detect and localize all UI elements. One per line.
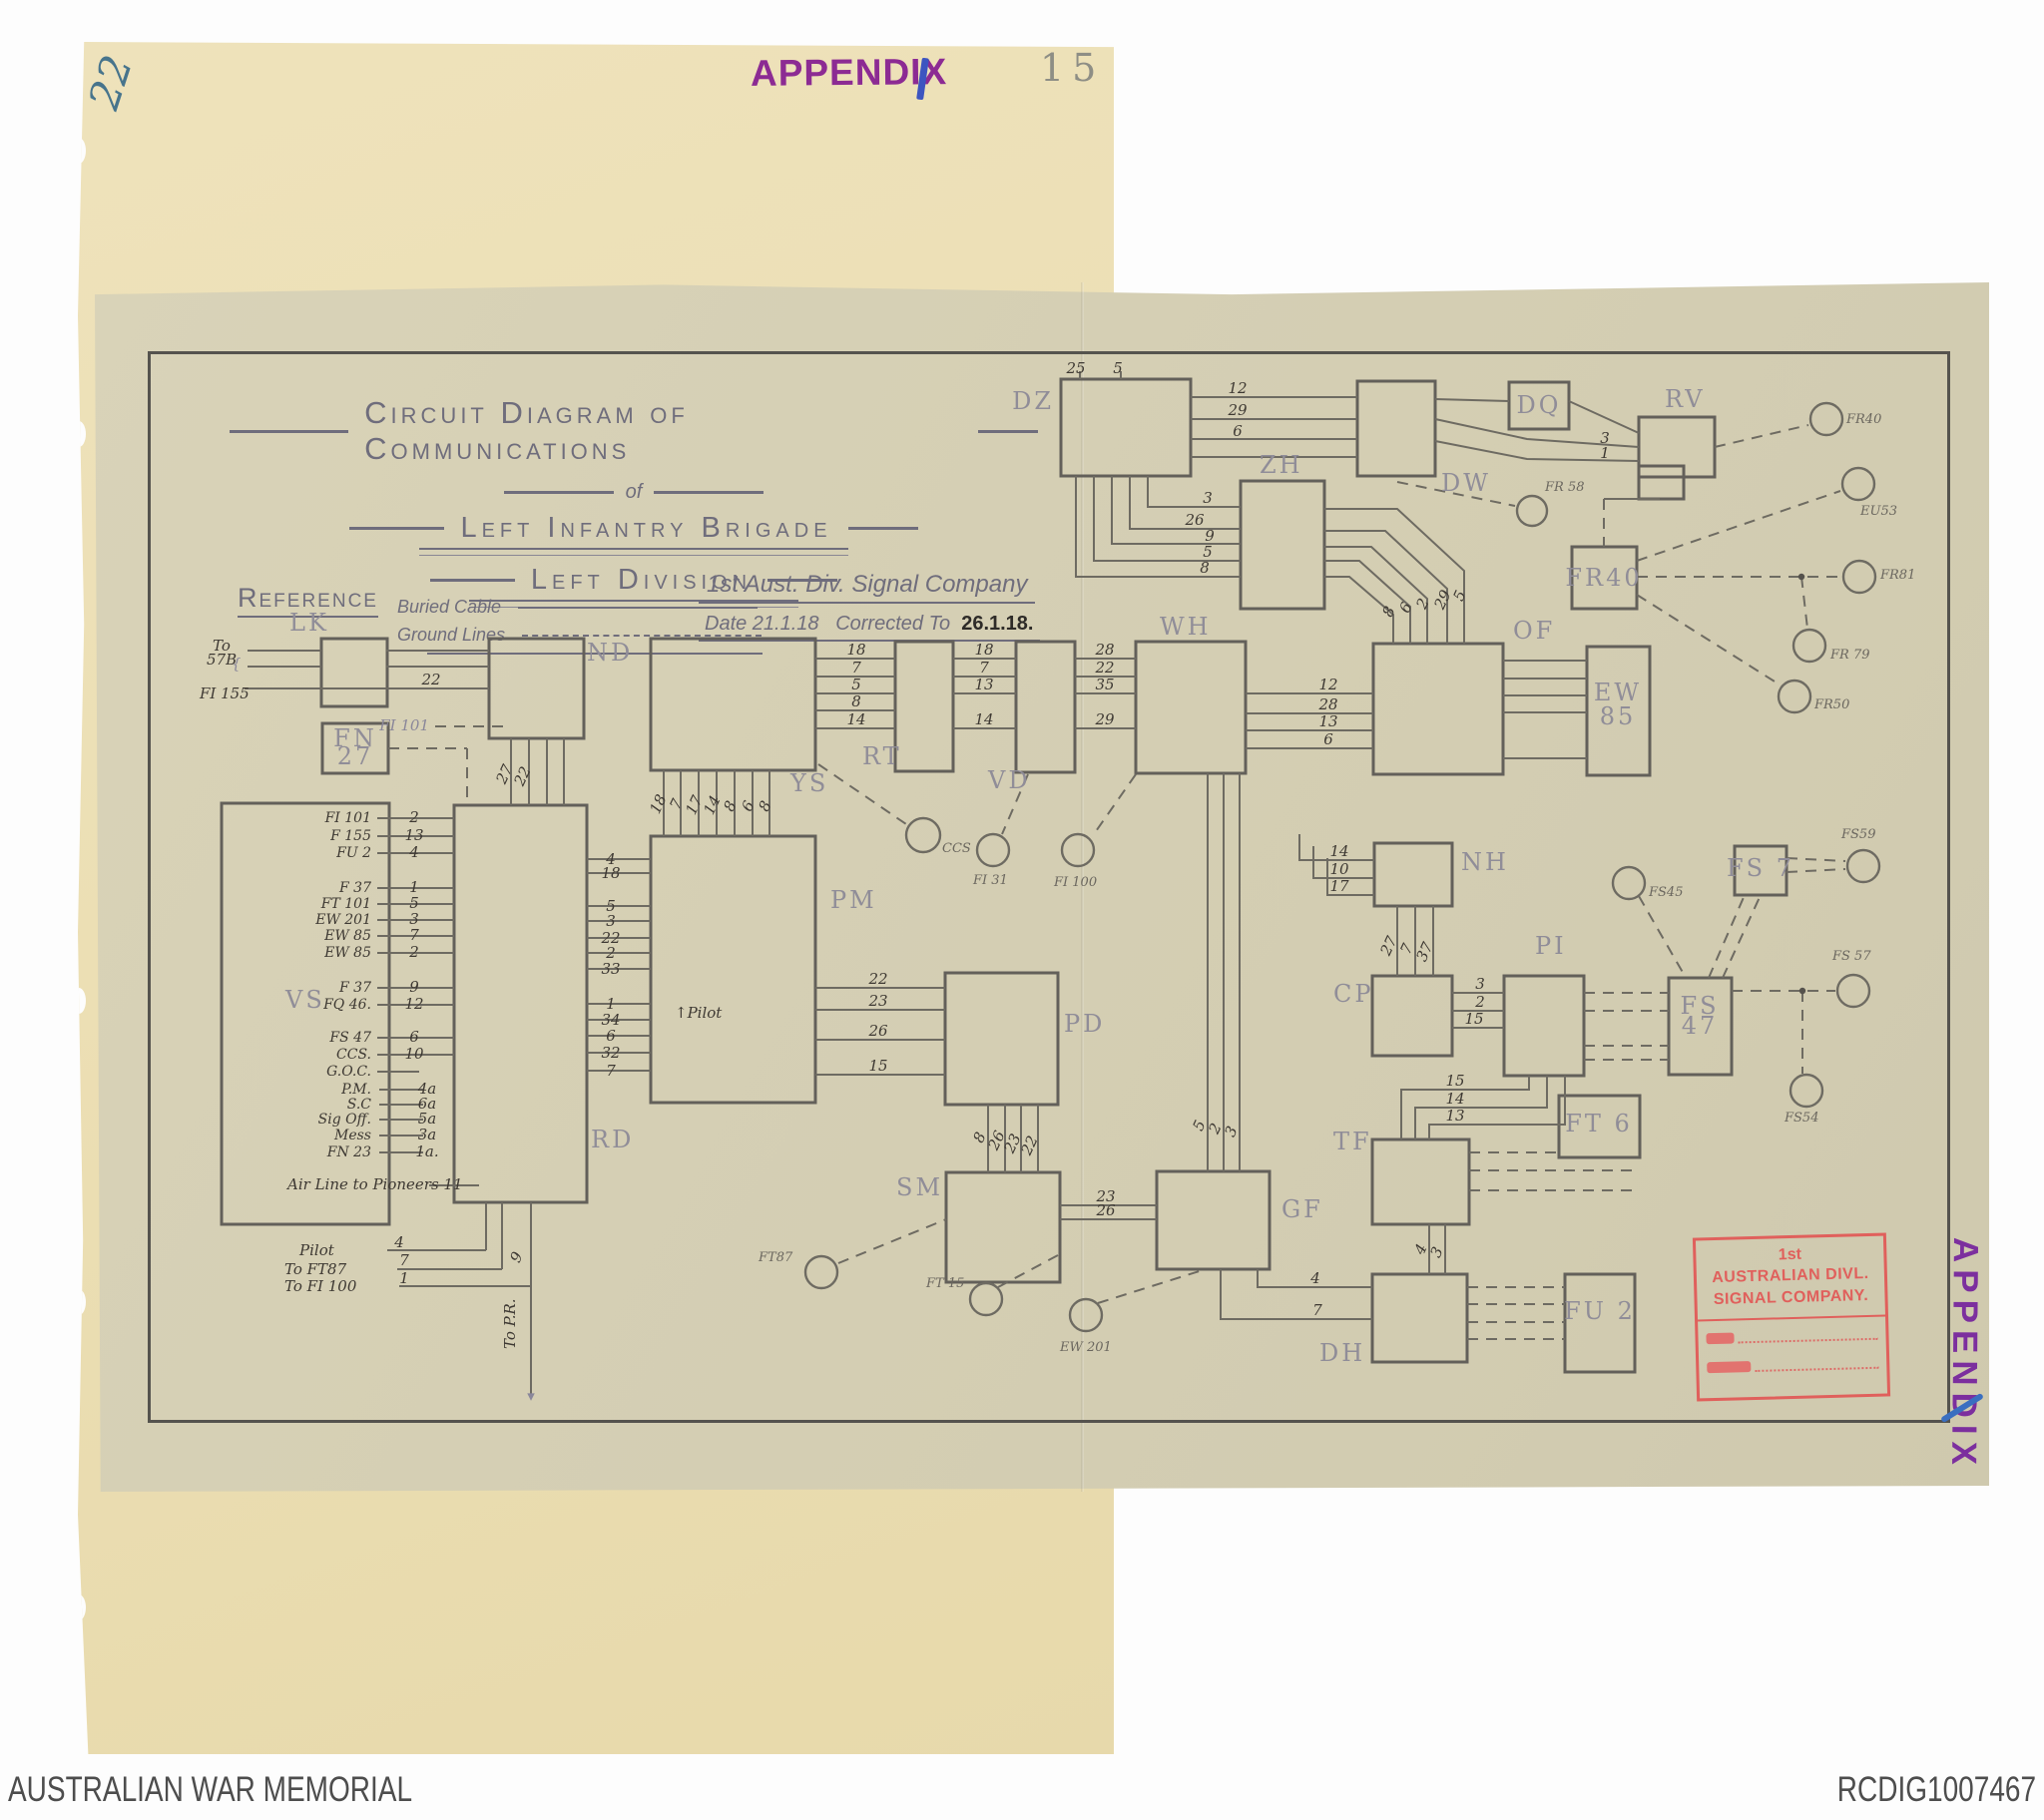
- terminal-label: FT 15: [925, 1276, 964, 1291]
- wire-label: 22: [867, 970, 887, 988]
- terminal-label: FI 100: [1053, 875, 1097, 890]
- terminal-label: FR 79: [1829, 648, 1869, 663]
- terminal-label: FR81: [1879, 568, 1915, 583]
- terminal-FR81: [1843, 561, 1875, 593]
- node-label: TF: [1333, 1128, 1372, 1155]
- node-PI: [1504, 976, 1584, 1076]
- terminal-EU53: [1842, 468, 1874, 500]
- ground-line: [1709, 895, 1745, 978]
- archive-id: RCDIG1007467: [1837, 1770, 2036, 1810]
- wire-label: FI 155: [199, 684, 250, 702]
- wire-label: EW 85: [323, 945, 371, 961]
- wire-label: To FT87: [284, 1260, 347, 1278]
- terminal-label: FR40: [1845, 412, 1881, 427]
- node-DW: [1357, 381, 1435, 476]
- wire-label: 14: [1445, 1090, 1464, 1108]
- wire-label: 7: [851, 659, 861, 677]
- node-YS: [651, 639, 815, 770]
- ground-line: [1639, 896, 1685, 976]
- wire-label: 14: [846, 710, 865, 728]
- wire-label: 18: [846, 641, 865, 659]
- wire-label: 5: [851, 676, 861, 693]
- node-label: VS: [284, 986, 325, 1014]
- node-NH: [1374, 843, 1452, 906]
- wire-label: 2: [1474, 993, 1485, 1011]
- wire-label: 29: [1094, 710, 1115, 728]
- terminal-label: FI 31: [972, 873, 1008, 888]
- node-label: FR40: [1565, 564, 1642, 592]
- wire-label: EW 201: [314, 912, 371, 928]
- wire-label: 7: [399, 1251, 409, 1269]
- wire-label: 28: [1094, 641, 1114, 659]
- terminal-label: CCS: [942, 841, 971, 856]
- terminal-FS54: [1790, 1075, 1822, 1107]
- unit-stamp-header: 1st AUSTRALIAN DIVL. SIGNAL COMPANY.: [1696, 1236, 1885, 1322]
- terminal-FR58: [1517, 496, 1547, 526]
- terminal-label: FS59: [1840, 827, 1875, 842]
- unit-stamp-line3: SIGNAL COMPANY.: [1701, 1287, 1880, 1310]
- terminal-FR40c: [1810, 403, 1842, 435]
- wire-label: 6: [606, 1027, 616, 1045]
- terminal-label: EW 201: [1059, 1340, 1112, 1355]
- terminal-label: FR 58: [1544, 480, 1584, 495]
- node-label: PM: [830, 886, 877, 914]
- ground-line: [1637, 595, 1783, 686]
- wire-label: FN 23: [326, 1144, 371, 1160]
- buried-cable-line: [1112, 476, 1241, 544]
- wire-label: 3: [606, 912, 616, 930]
- ground-line: [1094, 774, 1136, 834]
- node-label: OF: [1513, 617, 1555, 645]
- wire-label: 1: [1600, 444, 1610, 462]
- wire-label: 33: [601, 960, 620, 978]
- wire-label: 4: [1309, 1269, 1320, 1287]
- circuit-diagram-canvas: LKNDFN27VSRDYSPMRTVDWHOFEW85DZZHDWDQRVFR…: [0, 0, 2044, 1820]
- wire-label: 7: [409, 926, 419, 944]
- node-CP: [1372, 976, 1452, 1056]
- node-label: CP: [1333, 980, 1374, 1008]
- node-VD: [1016, 642, 1075, 772]
- node-OF: [1373, 644, 1503, 774]
- wire-label: 15: [1464, 1010, 1483, 1028]
- node-label: GF: [1281, 1195, 1323, 1223]
- wire-label: 13: [1318, 712, 1337, 730]
- wire-label: ▾: [527, 1387, 535, 1405]
- node-label: RV: [1665, 385, 1706, 413]
- unit-stamp: 1st AUSTRALIAN DIVL. SIGNAL COMPANY.: [1693, 1232, 1890, 1401]
- terminal-label: FR50: [1813, 697, 1849, 712]
- wire-label: 12: [404, 995, 423, 1013]
- wire-label: Sig Off.: [318, 1112, 371, 1128]
- wire-label: 6: [409, 1028, 419, 1046]
- wire-label: 22: [1094, 659, 1114, 677]
- wire-label: 26: [1095, 1201, 1116, 1219]
- node-label: DH: [1319, 1339, 1365, 1367]
- appendix-stamp-side: APPENDIX: [1943, 1237, 1985, 1472]
- node-label: ZH: [1260, 451, 1303, 479]
- wire-label: 9: [409, 978, 419, 996]
- node-DZ: [1061, 379, 1191, 476]
- wire-label: P.M.: [340, 1082, 371, 1098]
- wire-label: FQ 46.: [322, 997, 371, 1013]
- terminal-FT87: [805, 1256, 837, 1288]
- node-ZH: [1241, 481, 1324, 609]
- node-VS: [222, 803, 389, 1224]
- wire-label: Pilot: [298, 1241, 335, 1259]
- signature-row: [1706, 1329, 1877, 1344]
- signature-row: [1707, 1358, 1878, 1373]
- wire-label: {: [232, 655, 242, 673]
- wire-label: 3a: [418, 1126, 437, 1143]
- node-label: FS 7: [1727, 854, 1794, 882]
- wire-label: 8: [755, 798, 774, 814]
- wire-label: FI 101: [324, 810, 371, 826]
- wire-label: 26: [1184, 511, 1205, 529]
- unit-stamp-line2: AUSTRALIAN DIVL.: [1701, 1265, 1880, 1288]
- terminal-FS45: [1613, 867, 1645, 899]
- buried-cable-line: [1415, 1076, 1547, 1139]
- wire-label: 13: [404, 826, 423, 844]
- red-scribble: [1707, 1361, 1751, 1373]
- node-ND: [489, 639, 584, 738]
- wire-label: 32: [601, 1044, 620, 1062]
- wire-label: 23: [867, 992, 887, 1010]
- wire-label: 10: [1329, 860, 1349, 878]
- wire-label: 15: [1445, 1072, 1464, 1090]
- terminal-EW201: [1070, 1299, 1102, 1331]
- wire-label: Air Line to Pioneers 11: [285, 1175, 463, 1193]
- node-PM: [651, 836, 815, 1103]
- ground-line: [1098, 1269, 1206, 1303]
- node-label: DQ: [1517, 391, 1562, 419]
- wire-label: CCS.: [336, 1047, 371, 1063]
- archival-scan-page: 22 APPENDIX 15 Circuit Diagram of Commun…: [0, 0, 2044, 1820]
- archive-name: AUSTRALIAN WAR MEMORIAL: [8, 1770, 412, 1810]
- node-label: RD: [591, 1126, 634, 1153]
- wire-label: 18: [601, 864, 620, 882]
- node-LK: [321, 639, 387, 706]
- buried-cable-line: [1221, 1269, 1372, 1319]
- ground-line: [1723, 895, 1761, 978]
- node-label: VD: [987, 766, 1031, 794]
- node-label: ND: [587, 639, 633, 667]
- wire-label: F 37: [338, 880, 371, 896]
- ground-line: [1715, 425, 1808, 447]
- wire-label: G.O.C.: [326, 1064, 371, 1080]
- node-label: FU 2: [1564, 1297, 1636, 1325]
- wire-label: 6: [1233, 422, 1243, 440]
- wire-label: 14: [974, 710, 993, 728]
- terminal-FS59: [1847, 850, 1879, 882]
- ground-line: [1637, 491, 1840, 561]
- wire-label: 22: [420, 671, 440, 688]
- terminal-FI31: [977, 834, 1009, 866]
- red-scribble: [1706, 1333, 1734, 1345]
- wire-label: F 37: [338, 980, 371, 996]
- wire-label: 4: [393, 1233, 404, 1251]
- wire-label: 13: [974, 676, 993, 693]
- ground-line: [1787, 869, 1845, 872]
- wire-label: 7: [979, 659, 989, 677]
- node-label: DZ: [1012, 387, 1054, 415]
- terminal-FS57: [1837, 975, 1869, 1007]
- node-label: LK: [289, 609, 329, 637]
- terminal-label: FT87: [758, 1250, 793, 1265]
- wire-label: 14: [1329, 842, 1348, 860]
- terminal-FT15: [970, 1283, 1002, 1315]
- node-label: 85: [1600, 702, 1637, 730]
- node-label: PD: [1064, 1010, 1105, 1038]
- wire-label: 35: [1095, 676, 1114, 693]
- buried-cable-line: [1148, 476, 1241, 507]
- wire-label: 22: [510, 763, 535, 789]
- node-label: NH: [1461, 848, 1509, 876]
- wire-label: To FI 100: [284, 1277, 357, 1295]
- dotted-line: [1755, 1367, 1878, 1372]
- wire-label: 28: [1317, 695, 1337, 713]
- wire-label: 1: [399, 1269, 409, 1287]
- node-WH: [1136, 642, 1246, 773]
- wire-label: Mess: [333, 1128, 371, 1143]
- wire-label: 6: [1323, 730, 1333, 748]
- wire-label: F 155: [329, 828, 371, 844]
- wire-label: 12: [1318, 676, 1337, 693]
- terminal-FR79: [1793, 630, 1825, 662]
- junction-dot: [1798, 574, 1804, 580]
- dotted-line: [1739, 1338, 1878, 1344]
- wire-label: 17: [1329, 877, 1349, 895]
- ground-line: [818, 764, 906, 824]
- node-RT: [895, 642, 953, 771]
- ground-line: [1787, 858, 1845, 861]
- wire-label: FS 47: [328, 1030, 371, 1046]
- wire-label: 2: [408, 808, 419, 826]
- node-label: SM: [896, 1173, 943, 1201]
- unit-stamp-signature-area: [1698, 1317, 1887, 1399]
- terminal-label: FS54: [1784, 1111, 1818, 1126]
- node-RV: [1639, 417, 1715, 477]
- node-SM: [946, 1172, 1060, 1282]
- node-RV2: [1639, 466, 1684, 499]
- wire-label: 5: [1113, 359, 1123, 377]
- wire-label: EW 85: [323, 928, 371, 944]
- wire-label: 9: [506, 1248, 527, 1265]
- wire-label: 29: [1227, 401, 1248, 419]
- node-DH: [1372, 1274, 1467, 1362]
- unit-stamp-line1: 1st: [1700, 1244, 1879, 1267]
- node-label: RT: [862, 742, 902, 770]
- node-label: 27: [337, 742, 374, 770]
- node-label: 47: [1682, 1012, 1719, 1040]
- wire-label: 4: [408, 843, 419, 861]
- wire-label: 3: [1203, 489, 1213, 507]
- wire-label: 1a.: [415, 1142, 438, 1160]
- terminal-label: FS 57: [1831, 949, 1871, 964]
- wire-label: ↑Pilot: [675, 1004, 723, 1022]
- wire-label: 7: [1312, 1301, 1322, 1319]
- wire-label: 15: [868, 1057, 887, 1075]
- terminal-FR50: [1779, 681, 1810, 712]
- terminal-label: FS45: [1648, 885, 1683, 900]
- wire-label: 2: [408, 943, 419, 961]
- wire-label: 26: [867, 1022, 888, 1040]
- node-GF: [1157, 1171, 1270, 1269]
- wire-label: FT 101: [320, 896, 371, 912]
- junction-dot: [1799, 988, 1805, 994]
- wire-label: 8: [851, 692, 861, 710]
- wire-label: 3: [1475, 975, 1485, 993]
- wire-label: 8: [1200, 559, 1210, 577]
- wire-label: 7: [606, 1062, 616, 1080]
- wire-label: 25: [1065, 359, 1085, 377]
- wire-label: 18: [974, 641, 993, 659]
- terminal-FI100: [1062, 834, 1094, 866]
- node-label: FT 6: [1565, 1110, 1633, 1137]
- wire-label: 5: [1449, 588, 1469, 604]
- node-PD: [945, 973, 1058, 1105]
- node-label: PI: [1535, 932, 1567, 960]
- wire-label: 13: [1445, 1107, 1464, 1125]
- node-label: WH: [1160, 613, 1212, 641]
- node-TF: [1372, 1139, 1469, 1224]
- ground-line: [838, 1219, 946, 1263]
- node-label: YS: [789, 769, 828, 797]
- ground-line: [1801, 577, 1807, 629]
- buried-cable-line: [1435, 399, 1509, 401]
- wire-label: To P.R.: [501, 1298, 519, 1349]
- wire-label: S.C: [347, 1097, 372, 1113]
- wire-label: 10: [404, 1045, 424, 1063]
- terminal-label: EU53: [1859, 504, 1897, 519]
- node-RD: [454, 805, 587, 1202]
- wire-label: 12: [1228, 379, 1247, 397]
- buried-cable-line: [1094, 476, 1241, 561]
- node-label: DW: [1441, 469, 1491, 497]
- wire-label: FI 101: [378, 716, 429, 734]
- wire-label: FU 2: [335, 845, 371, 861]
- terminal-CCS: [906, 818, 940, 852]
